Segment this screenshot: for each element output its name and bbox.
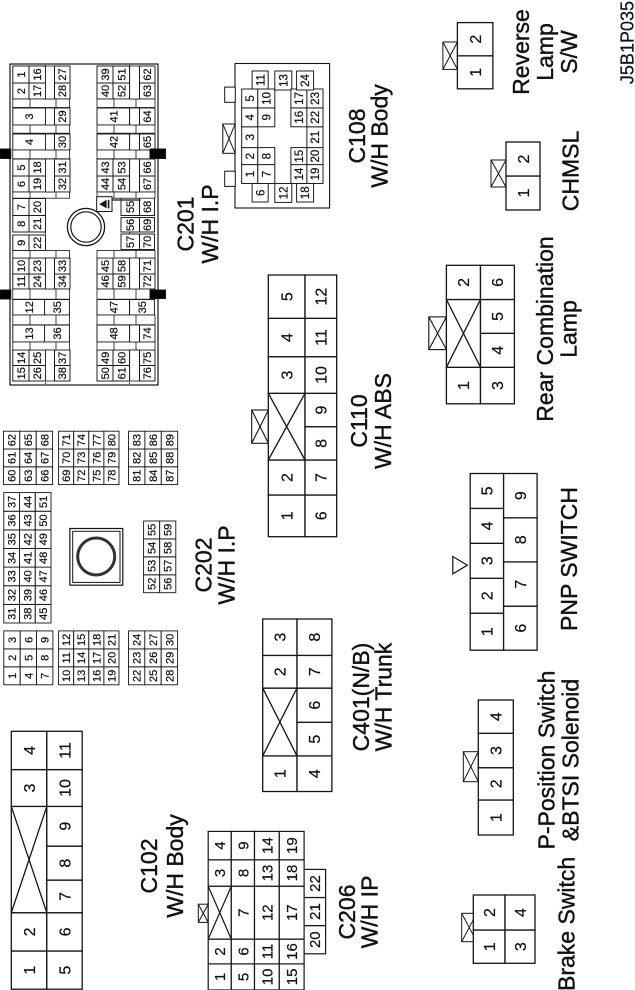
svg-text:54: 54 — [147, 542, 159, 554]
svg-text:7: 7 — [314, 473, 331, 482]
svg-text:38: 38 — [22, 608, 34, 620]
svg-text:7: 7 — [16, 204, 28, 210]
svg-text:77: 77 — [91, 434, 103, 446]
svg-text:19: 19 — [106, 670, 118, 682]
svg-text:80: 80 — [106, 434, 118, 446]
svg-text:54: 54 — [116, 178, 128, 190]
svg-text:47: 47 — [108, 301, 120, 313]
svg-text:23: 23 — [32, 260, 44, 272]
svg-text:23: 23 — [310, 92, 322, 105]
svg-text:70: 70 — [61, 452, 73, 464]
svg-text:16: 16 — [32, 68, 44, 80]
svg-text:74: 74 — [76, 434, 88, 446]
svg-text:13: 13 — [259, 865, 276, 882]
svg-text:57: 57 — [125, 236, 137, 248]
svg-text:39: 39 — [100, 68, 112, 80]
svg-text:55: 55 — [125, 201, 137, 213]
svg-text:8: 8 — [261, 153, 273, 159]
svg-text:76: 76 — [142, 367, 154, 379]
svg-text:62: 62 — [142, 68, 154, 80]
svg-text:58: 58 — [163, 542, 175, 554]
svg-text:1: 1 — [7, 673, 19, 679]
svg-text:C102: C102 — [136, 839, 162, 894]
svg-text:64: 64 — [142, 110, 154, 122]
svg-text:29: 29 — [164, 652, 176, 664]
svg-text:1: 1 — [16, 71, 28, 77]
svg-text:48: 48 — [108, 327, 120, 339]
svg-text:14: 14 — [76, 652, 88, 664]
svg-text:40: 40 — [100, 85, 112, 97]
svg-text:33: 33 — [57, 260, 69, 272]
svg-text:1: 1 — [245, 171, 257, 177]
svg-text:2: 2 — [482, 908, 499, 917]
svg-text:11: 11 — [16, 276, 28, 287]
svg-text:50: 50 — [100, 367, 112, 379]
svg-text:68: 68 — [142, 201, 154, 213]
svg-text:3: 3 — [212, 869, 229, 877]
svg-text:11: 11 — [61, 652, 73, 663]
svg-text:75: 75 — [91, 470, 103, 482]
svg-text:63: 63 — [23, 470, 35, 482]
svg-text:41: 41 — [22, 552, 34, 564]
svg-text:W/H Body: W/H Body — [162, 814, 188, 918]
svg-text:16: 16 — [284, 943, 301, 960]
svg-text:15: 15 — [76, 634, 88, 646]
svg-text:J5B1P035: J5B1P035 — [618, 1, 635, 84]
svg-text:18: 18 — [300, 186, 312, 199]
svg-text:9: 9 — [235, 841, 252, 849]
svg-text:56: 56 — [125, 219, 137, 231]
svg-text:75: 75 — [142, 352, 154, 364]
svg-text:C201: C201 — [173, 197, 199, 252]
svg-text:2: 2 — [245, 153, 257, 159]
svg-text:69: 69 — [142, 219, 154, 231]
svg-text:4: 4 — [490, 346, 507, 355]
svg-text:59: 59 — [116, 275, 128, 287]
svg-text:83: 83 — [132, 434, 144, 446]
svg-text:9: 9 — [40, 637, 52, 643]
svg-text:45: 45 — [100, 260, 112, 272]
svg-text:8: 8 — [40, 655, 52, 661]
svg-text:34: 34 — [57, 275, 69, 287]
svg-text:60: 60 — [7, 470, 19, 482]
svg-text:74: 74 — [142, 327, 154, 339]
svg-text:6: 6 — [307, 701, 324, 710]
svg-text:13: 13 — [278, 74, 290, 87]
svg-text:4: 4 — [245, 114, 257, 121]
svg-text:44: 44 — [22, 496, 34, 508]
svg-text:63: 63 — [142, 85, 154, 97]
svg-text:72: 72 — [76, 470, 88, 482]
svg-text:22: 22 — [32, 237, 44, 249]
svg-text:1: 1 — [22, 966, 39, 975]
svg-text:19: 19 — [32, 178, 44, 190]
svg-text:21: 21 — [32, 218, 44, 230]
svg-text:51: 51 — [38, 496, 50, 508]
svg-text:6: 6 — [255, 190, 267, 196]
svg-text:3: 3 — [513, 942, 530, 951]
svg-text:3: 3 — [273, 633, 290, 642]
svg-text:10: 10 — [261, 92, 273, 105]
svg-text:49: 49 — [100, 352, 112, 364]
svg-text:P-Position Switch: P-Position Switch — [534, 671, 560, 850]
svg-text:W/H ABS: W/H ABS — [370, 373, 396, 469]
svg-text:9: 9 — [57, 822, 74, 831]
svg-text:16: 16 — [91, 670, 103, 682]
svg-text:41: 41 — [108, 110, 120, 122]
svg-text:31: 31 — [57, 161, 69, 173]
svg-text:3: 3 — [490, 381, 507, 390]
svg-text:5: 5 — [23, 655, 35, 661]
svg-text:78: 78 — [106, 470, 118, 482]
svg-text:46: 46 — [100, 275, 112, 287]
svg-text:51: 51 — [116, 68, 128, 80]
svg-text:14: 14 — [294, 167, 306, 180]
svg-text:10: 10 — [314, 366, 331, 384]
svg-text:52: 52 — [116, 85, 128, 97]
svg-text:16: 16 — [294, 111, 306, 124]
svg-text:8: 8 — [235, 869, 252, 877]
svg-text:3: 3 — [480, 556, 497, 565]
svg-text:W/H I.P: W/H I.P — [214, 525, 240, 604]
svg-text:55: 55 — [147, 524, 159, 536]
svg-text:2: 2 — [273, 667, 290, 676]
svg-text:53: 53 — [147, 560, 159, 572]
svg-text:35: 35 — [7, 533, 19, 545]
svg-text:10: 10 — [16, 260, 28, 272]
svg-text:2: 2 — [7, 655, 19, 661]
svg-text:2: 2 — [22, 927, 39, 936]
svg-text:21: 21 — [307, 903, 324, 920]
svg-text:5: 5 — [235, 973, 252, 981]
svg-text:26: 26 — [32, 367, 44, 379]
svg-text:24: 24 — [132, 634, 144, 646]
svg-text:5: 5 — [279, 292, 296, 301]
svg-text:84: 84 — [148, 470, 160, 482]
svg-text:17: 17 — [294, 92, 306, 105]
svg-text:28: 28 — [164, 670, 176, 682]
svg-text:W/H Body: W/H Body — [367, 84, 393, 188]
svg-text:&BTSI Solenoid: &BTSI Solenoid — [558, 679, 584, 841]
svg-text:26: 26 — [148, 652, 160, 664]
svg-text:76: 76 — [91, 452, 103, 464]
svg-text:67: 67 — [142, 178, 154, 190]
svg-text:13: 13 — [24, 327, 36, 339]
svg-text:13: 13 — [76, 670, 88, 682]
svg-text:12: 12 — [24, 301, 36, 313]
svg-text:48: 48 — [38, 552, 50, 564]
svg-text:35: 35 — [52, 301, 64, 313]
svg-text:37: 37 — [7, 496, 19, 508]
svg-text:11: 11 — [314, 329, 331, 346]
svg-text:52: 52 — [147, 578, 159, 590]
svg-text:85: 85 — [148, 452, 160, 464]
svg-text:4: 4 — [307, 769, 324, 778]
svg-text:1: 1 — [482, 942, 499, 951]
svg-text:8: 8 — [314, 439, 331, 448]
svg-text:89: 89 — [165, 434, 177, 446]
svg-text:2: 2 — [212, 947, 229, 955]
svg-text:33: 33 — [7, 570, 19, 582]
svg-text:10: 10 — [57, 779, 74, 797]
svg-text:30: 30 — [57, 136, 69, 148]
svg-text:35: 35 — [137, 301, 149, 313]
svg-text:87: 87 — [165, 470, 177, 482]
svg-text:4: 4 — [22, 746, 39, 755]
svg-text:2: 2 — [489, 779, 506, 788]
svg-text:CHMSL: CHMSL — [558, 131, 584, 212]
svg-text:20: 20 — [32, 201, 44, 213]
svg-text:17: 17 — [32, 85, 44, 97]
svg-text:6: 6 — [513, 624, 530, 633]
svg-text:1: 1 — [456, 381, 473, 390]
svg-text:25: 25 — [148, 670, 160, 682]
svg-text:23: 23 — [132, 652, 144, 664]
svg-text:12: 12 — [314, 288, 331, 306]
svg-text:79: 79 — [106, 452, 118, 464]
svg-text:10: 10 — [61, 670, 73, 682]
svg-text:66: 66 — [142, 161, 154, 173]
svg-text:67: 67 — [39, 452, 51, 464]
svg-text:Lamp: Lamp — [532, 23, 558, 81]
svg-text:4: 4 — [513, 908, 530, 917]
svg-text:30: 30 — [164, 634, 176, 646]
svg-text:22: 22 — [307, 875, 324, 892]
svg-text:5: 5 — [490, 312, 507, 321]
svg-text:28: 28 — [57, 85, 69, 97]
svg-text:62: 62 — [7, 434, 19, 446]
svg-text:65: 65 — [23, 434, 35, 446]
svg-text:15: 15 — [284, 969, 301, 986]
svg-text:14: 14 — [16, 352, 28, 364]
svg-text:20: 20 — [310, 150, 322, 163]
svg-text:22: 22 — [310, 111, 322, 124]
svg-text:15: 15 — [16, 367, 28, 379]
svg-text:1: 1 — [279, 511, 296, 520]
svg-text:Reverse: Reverse — [508, 9, 534, 95]
svg-text:46: 46 — [38, 589, 50, 601]
svg-text:86: 86 — [148, 434, 160, 446]
svg-text:1: 1 — [468, 68, 485, 77]
svg-text:71: 71 — [61, 434, 73, 446]
svg-text:25: 25 — [32, 352, 44, 364]
svg-text:8: 8 — [513, 535, 530, 544]
svg-text:24: 24 — [32, 275, 44, 287]
svg-text:S/W: S/W — [556, 30, 582, 74]
svg-text:1: 1 — [273, 769, 290, 778]
svg-text:18: 18 — [284, 865, 301, 882]
svg-text:56: 56 — [163, 578, 175, 590]
svg-text:57: 57 — [163, 560, 175, 572]
svg-text:2: 2 — [468, 35, 485, 44]
svg-text:32: 32 — [57, 178, 69, 190]
svg-text:2: 2 — [456, 278, 473, 287]
svg-text:27: 27 — [148, 634, 160, 646]
svg-text:9: 9 — [261, 114, 273, 120]
svg-text:18: 18 — [32, 161, 44, 173]
svg-text:9: 9 — [16, 240, 28, 246]
svg-text:2: 2 — [480, 591, 497, 600]
svg-text:3: 3 — [489, 746, 506, 755]
svg-text:3: 3 — [24, 113, 36, 119]
svg-text:24: 24 — [300, 74, 312, 87]
svg-text:73: 73 — [76, 452, 88, 464]
svg-text:39: 39 — [22, 589, 34, 601]
svg-text:3: 3 — [7, 637, 19, 643]
svg-text:69: 69 — [61, 470, 73, 482]
svg-text:6: 6 — [23, 637, 35, 643]
svg-text:3: 3 — [245, 134, 257, 140]
svg-text:34: 34 — [7, 552, 19, 564]
svg-text:17: 17 — [284, 904, 301, 921]
svg-text:82: 82 — [132, 452, 144, 464]
svg-text:12: 12 — [61, 634, 73, 646]
svg-text:81: 81 — [132, 470, 144, 482]
svg-text:1: 1 — [480, 627, 497, 636]
svg-text:17: 17 — [91, 652, 103, 664]
svg-text:31: 31 — [7, 608, 19, 620]
svg-text:61: 61 — [116, 367, 128, 379]
svg-text:4: 4 — [279, 333, 296, 342]
svg-text:5: 5 — [307, 735, 324, 744]
svg-text:11: 11 — [57, 742, 74, 759]
svg-text:8: 8 — [16, 221, 28, 227]
svg-text:11: 11 — [255, 74, 267, 86]
svg-text:66: 66 — [39, 470, 51, 482]
svg-text:38: 38 — [57, 367, 69, 379]
svg-text:21: 21 — [106, 634, 118, 646]
svg-text:4: 4 — [24, 139, 36, 145]
svg-text:64: 64 — [23, 452, 35, 464]
svg-text:5: 5 — [480, 486, 497, 495]
svg-text:8: 8 — [307, 633, 324, 642]
svg-text:47: 47 — [38, 570, 50, 582]
svg-text:C110: C110 — [346, 394, 372, 447]
svg-text:53: 53 — [116, 161, 128, 173]
svg-text:9: 9 — [513, 491, 530, 500]
svg-text:6: 6 — [314, 511, 331, 520]
svg-text:6: 6 — [16, 181, 28, 187]
svg-text:20: 20 — [307, 931, 324, 948]
svg-text:Brake Switch: Brake Switch — [554, 857, 580, 990]
svg-text:88: 88 — [165, 452, 177, 464]
svg-text:2: 2 — [516, 154, 533, 163]
svg-text:4: 4 — [480, 521, 497, 530]
svg-text:60: 60 — [116, 352, 128, 364]
svg-text:68: 68 — [39, 434, 51, 446]
svg-text:40: 40 — [22, 570, 34, 582]
svg-text:6: 6 — [235, 947, 252, 955]
svg-text:58: 58 — [116, 260, 128, 272]
svg-text:21: 21 — [310, 131, 322, 144]
svg-text:11: 11 — [259, 944, 276, 960]
svg-text:9: 9 — [314, 405, 331, 414]
svg-text:W/H IP: W/H IP — [357, 876, 383, 949]
svg-text:7: 7 — [261, 171, 273, 177]
svg-text:1: 1 — [212, 973, 229, 981]
svg-text:7: 7 — [235, 909, 252, 917]
svg-text:42: 42 — [108, 136, 120, 148]
svg-text:2: 2 — [16, 88, 28, 94]
svg-text:10: 10 — [259, 969, 276, 986]
svg-text:43: 43 — [22, 514, 34, 526]
svg-text:44: 44 — [100, 178, 112, 190]
svg-text:29: 29 — [57, 110, 69, 122]
svg-text:20: 20 — [106, 652, 118, 664]
svg-text:5: 5 — [16, 164, 28, 170]
svg-text:1: 1 — [489, 813, 506, 822]
svg-text:71: 71 — [142, 260, 154, 272]
svg-text:50: 50 — [38, 514, 50, 526]
svg-text:37: 37 — [57, 352, 69, 364]
svg-text:22: 22 — [132, 670, 144, 682]
svg-text:W/H I.P: W/H I.P — [197, 184, 223, 263]
svg-text:W/H Trunk: W/H Trunk — [371, 642, 397, 751]
svg-text:65: 65 — [142, 136, 154, 148]
svg-text:32: 32 — [7, 589, 19, 601]
svg-text:6: 6 — [490, 278, 507, 287]
svg-text:3: 3 — [279, 370, 296, 379]
svg-text:36: 36 — [7, 514, 19, 526]
svg-text:61: 61 — [7, 452, 19, 464]
svg-text:18: 18 — [91, 634, 103, 646]
svg-text:7: 7 — [40, 673, 52, 679]
svg-text:36: 36 — [52, 327, 64, 339]
svg-text:59: 59 — [163, 524, 175, 536]
svg-text:70: 70 — [142, 236, 154, 248]
svg-text:5: 5 — [57, 966, 74, 975]
svg-text:4: 4 — [212, 841, 229, 849]
svg-text:4: 4 — [23, 673, 35, 679]
svg-text:7: 7 — [513, 580, 530, 589]
svg-text:12: 12 — [259, 904, 276, 921]
svg-text:15: 15 — [294, 150, 306, 163]
svg-text:42: 42 — [22, 533, 34, 545]
svg-text:19: 19 — [310, 168, 322, 181]
svg-text:27: 27 — [57, 68, 69, 80]
svg-text:8: 8 — [57, 859, 74, 868]
svg-text:Rear Combination: Rear Combination — [532, 236, 558, 421]
svg-text:7: 7 — [307, 667, 324, 676]
svg-text:7: 7 — [57, 892, 74, 901]
svg-text:49: 49 — [38, 533, 50, 545]
svg-text:14: 14 — [259, 837, 276, 854]
svg-text:1: 1 — [516, 188, 533, 197]
svg-text:PNP SWITCH: PNP SWITCH — [556, 487, 582, 631]
svg-text:6: 6 — [57, 927, 74, 936]
svg-text:43: 43 — [100, 161, 112, 173]
svg-text:45: 45 — [38, 608, 50, 620]
svg-text:3: 3 — [22, 783, 39, 792]
svg-text:12: 12 — [278, 187, 290, 200]
svg-text:19: 19 — [284, 837, 301, 854]
svg-text:Lamp: Lamp — [556, 300, 582, 358]
svg-text:72: 72 — [142, 275, 154, 287]
svg-text:2: 2 — [279, 473, 296, 482]
svg-text:5: 5 — [245, 95, 257, 101]
svg-text:4: 4 — [489, 712, 506, 721]
